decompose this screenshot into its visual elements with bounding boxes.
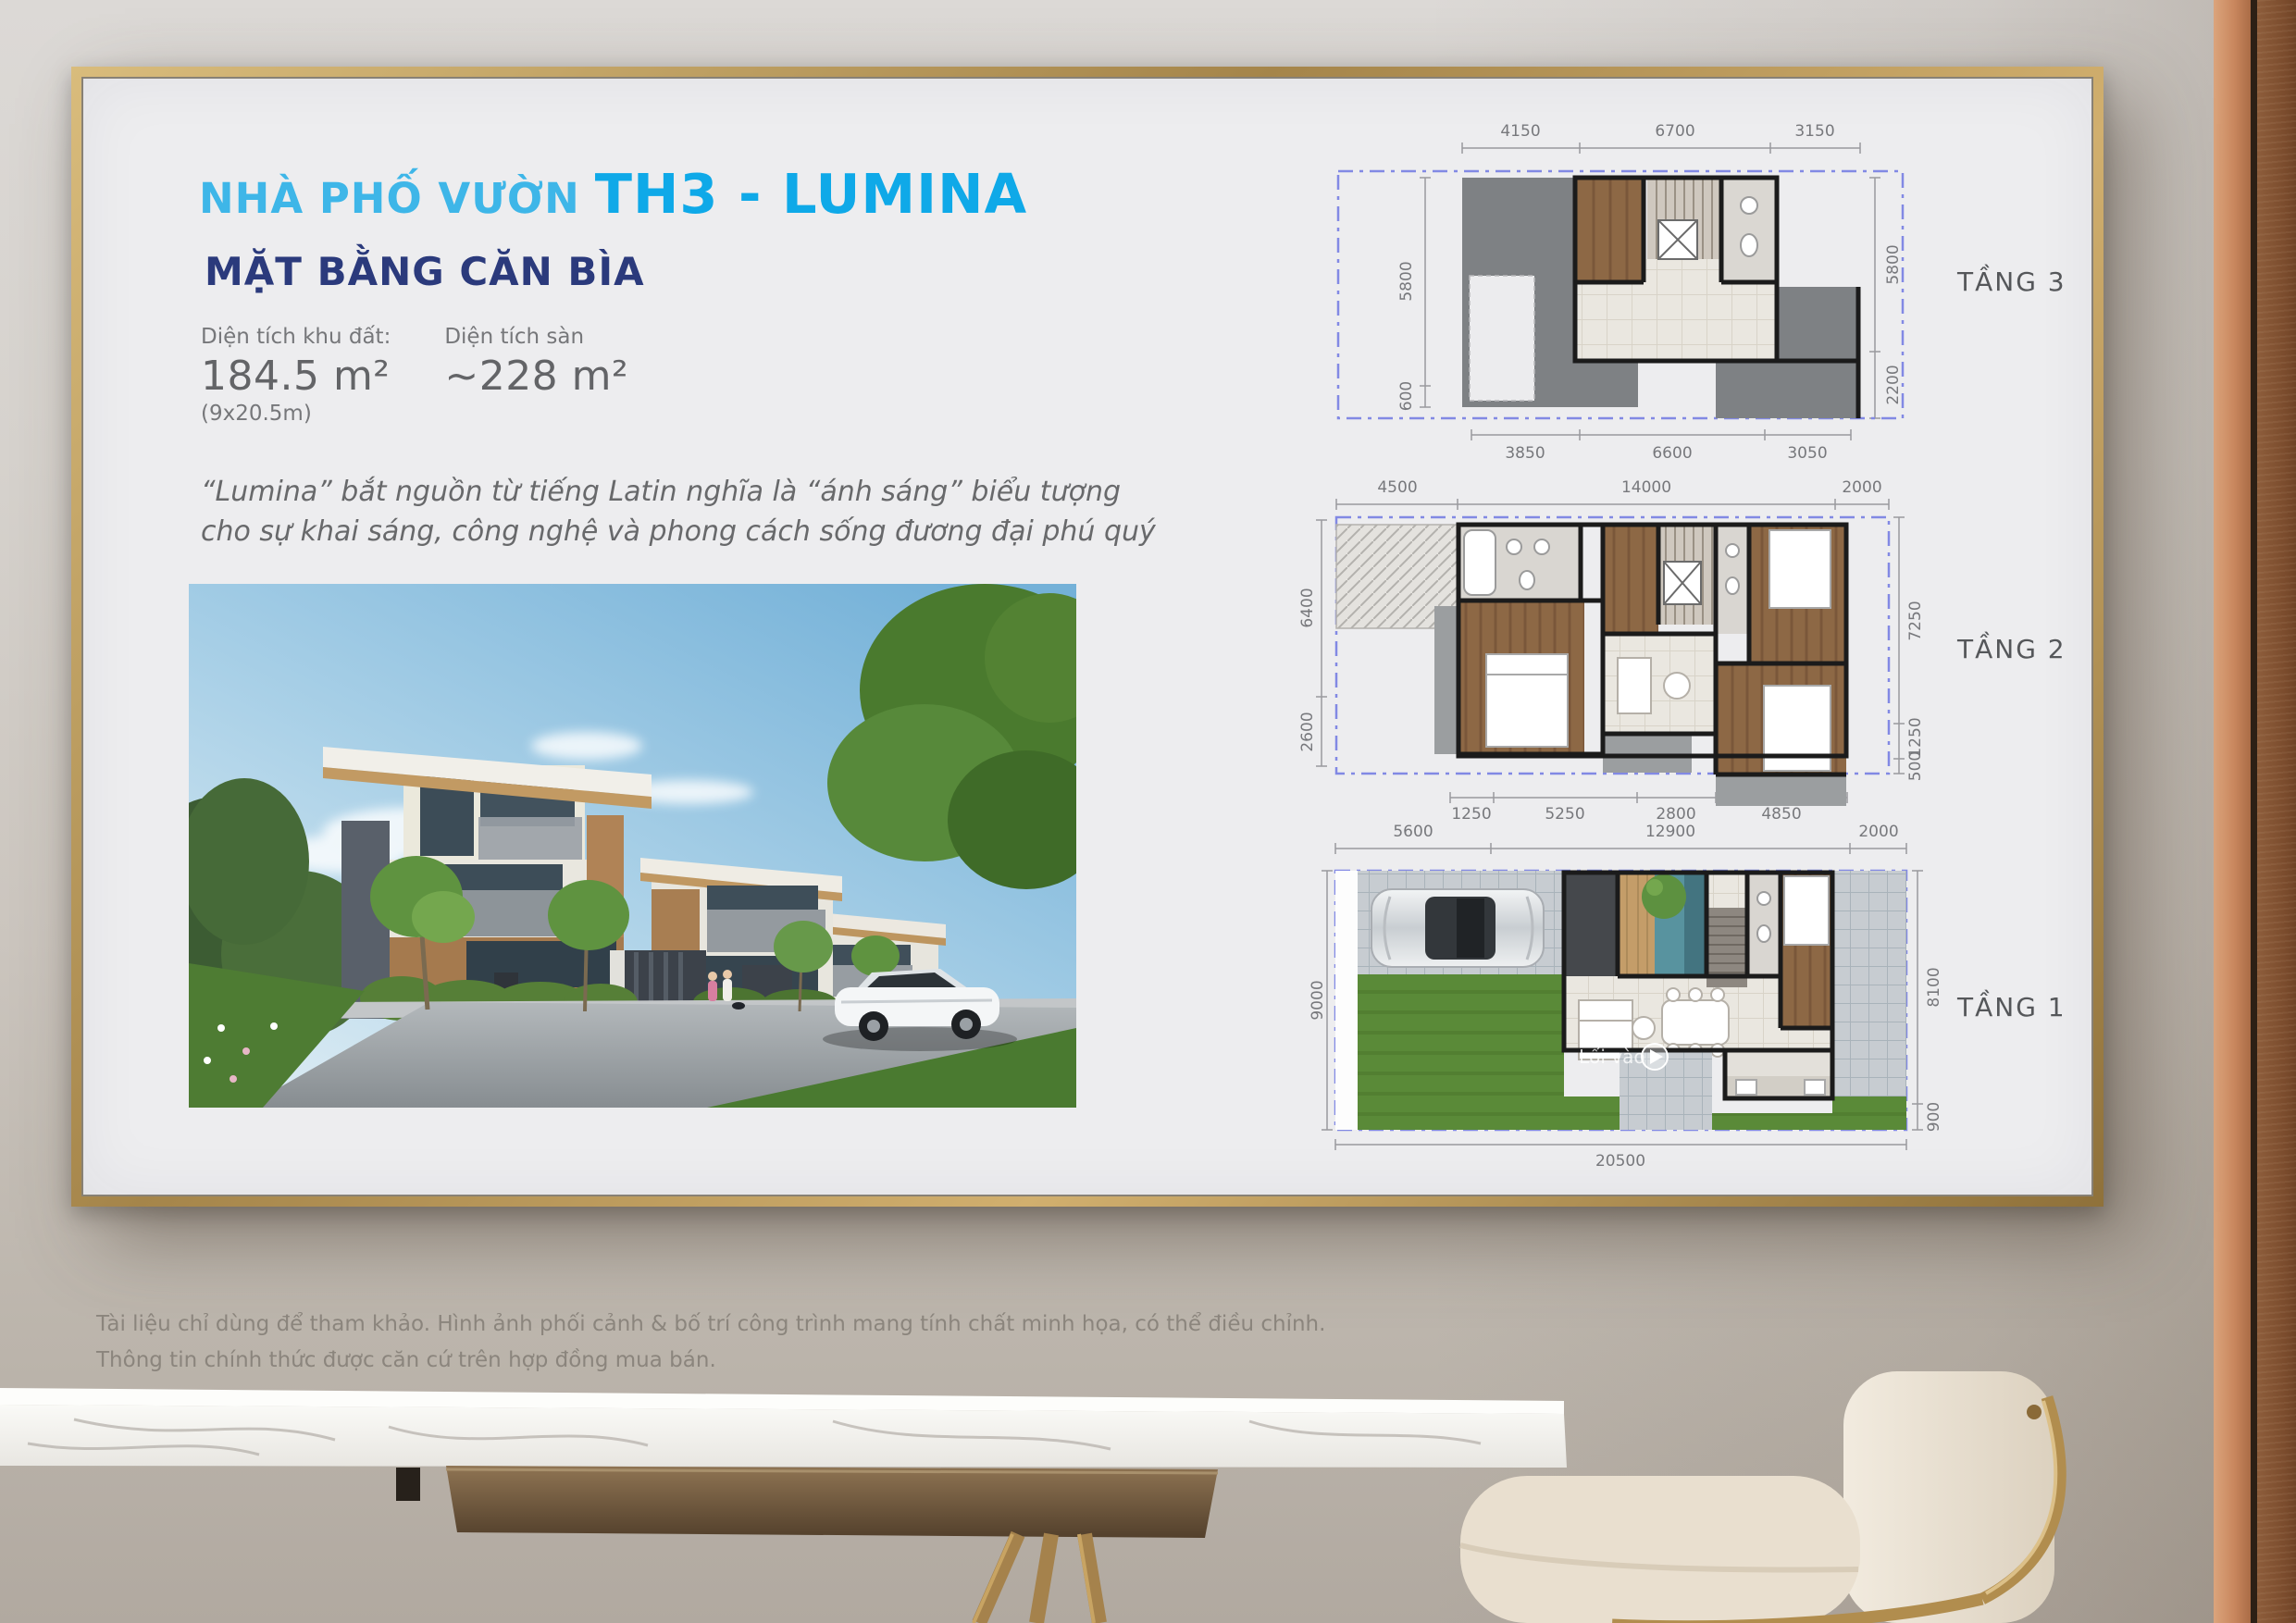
bathroom xyxy=(1747,873,1781,976)
kitchen xyxy=(1725,1050,1832,1098)
land-area-note: (9x20.5m) xyxy=(201,402,391,426)
dim-label: 5800 xyxy=(1397,261,1416,301)
family-room xyxy=(1603,634,1716,734)
foreground-furniture xyxy=(0,1323,2296,1623)
land-area-label: Diện tích khu đất: xyxy=(201,325,391,349)
dim-label: 6700 xyxy=(1655,122,1694,141)
floor-area-stat: Diện tích sàn ~228 m² xyxy=(444,325,628,426)
dim-label: 2200 xyxy=(1884,365,1903,404)
bedroom-master xyxy=(1458,601,1584,754)
dim-label: 20500 xyxy=(1595,1152,1645,1171)
dim-label: 6600 xyxy=(1652,444,1692,463)
bedroom-2 xyxy=(1749,525,1846,663)
dim-label: 14000 xyxy=(1621,478,1671,497)
dim-label: 12900 xyxy=(1645,823,1695,841)
balcony-right xyxy=(1716,774,1846,806)
poster-subtitle: MẶT BẰNG CĂN BÌA xyxy=(205,249,645,294)
render-photo xyxy=(189,584,1076,1108)
title-prefix: NHÀ PHỐ VƯỜN xyxy=(199,174,580,223)
floor-plan-level-2: 4500 14000 2000 1250 5250 2800 4850 6400… xyxy=(1296,477,1943,824)
dim-label: 5600 xyxy=(1393,823,1433,841)
lawn-patch-4 xyxy=(1832,1096,1906,1130)
side-strip xyxy=(1335,871,1358,1130)
level-2-label: TẦNG 2 xyxy=(1957,634,2066,664)
bedroom xyxy=(1781,871,1832,1028)
roof-terrace-bottom xyxy=(1716,361,1858,418)
dim-label: 2000 xyxy=(1858,823,1898,841)
dim-label: 8100 xyxy=(1925,967,1943,1007)
dim-label: 3050 xyxy=(1787,444,1827,463)
lawn-patch-2 xyxy=(1564,1096,1620,1130)
bathroom-suite xyxy=(1458,525,1581,601)
dim-label: 4500 xyxy=(1377,478,1417,497)
area-stats: Diện tích khu đất: 184.5 m² (9x20.5m) Di… xyxy=(201,325,628,426)
land-area-value: 184.5 m² xyxy=(201,353,391,400)
bathroom xyxy=(1723,178,1777,282)
dim-label: 3150 xyxy=(1794,122,1834,141)
floor-plan-level-1: Lối vào 5600 12900 2000 20500 9000 8100 … xyxy=(1314,819,1953,1184)
floor-plan-level-3: 4150 6700 3150 3850 6600 3050 5800 600 5… xyxy=(1333,120,1943,472)
wood-room xyxy=(1577,178,1644,282)
quote-line-1: “Lumina” bắt nguồn từ tiếng Latin nghĩa … xyxy=(201,473,1156,513)
entry-marble xyxy=(1564,873,1618,976)
entrance-watermark: Lối vào xyxy=(1579,1044,1668,1070)
dim-label: 9000 xyxy=(1309,980,1327,1020)
marble-table xyxy=(0,1388,1567,1623)
dim-label: 6400 xyxy=(1298,588,1317,627)
balcony-left xyxy=(1434,606,1458,754)
lawn-patch-3 xyxy=(1712,1113,1832,1130)
dim-label: 5800 xyxy=(1884,244,1903,284)
deck-and-pond xyxy=(1618,873,1706,976)
title-main: TH3 - LUMINA xyxy=(595,162,1027,226)
stairs xyxy=(1658,525,1716,625)
play-icon xyxy=(1642,1044,1668,1070)
quote-text: “Lumina” bắt nguồn từ tiếng Latin nghĩa … xyxy=(201,473,1156,552)
quote-line-2: cho sự khai sáng, công nghệ và phong các… xyxy=(201,513,1156,552)
stairs xyxy=(1647,178,1719,259)
dim-label: 4150 xyxy=(1500,122,1540,141)
dim-label: 7250 xyxy=(1906,601,1925,640)
scene: NHÀ PHỐ VƯỜN TH3 - LUMINA MẶT BẰNG CĂN B… xyxy=(0,0,2296,1623)
poster-title: NHÀ PHỐ VƯỜN TH3 - LUMINA xyxy=(199,162,1027,226)
dim-label: 500 xyxy=(1906,751,1925,781)
balcony-center xyxy=(1603,734,1692,773)
dining-set xyxy=(1662,988,1729,1057)
hall-wood xyxy=(1603,525,1658,634)
dim-label: 2000 xyxy=(1842,478,1881,497)
patio-tiles xyxy=(1832,871,1906,1096)
gold-picture-frame: NHÀ PHỐ VƯỜN TH3 - LUMINA MẶT BẰNG CĂN B… xyxy=(71,67,2104,1207)
dim-label: 3850 xyxy=(1505,444,1545,463)
dim-label: 600 xyxy=(1397,381,1416,411)
bathroom-2 xyxy=(1716,525,1749,634)
dim-label: 2600 xyxy=(1298,712,1317,751)
roof-terrace-right xyxy=(1768,287,1858,361)
dim-label: 900 xyxy=(1925,1102,1943,1132)
floor-area-value: ~228 m² xyxy=(444,353,628,400)
land-area-stat: Diện tích khu đất: 184.5 m² (9x20.5m) xyxy=(201,325,391,426)
poster-board: NHÀ PHỐ VƯỜN TH3 - LUMINA MẶT BẰNG CĂN B… xyxy=(81,77,2093,1196)
car-icon xyxy=(1371,889,1544,967)
garden-lawn xyxy=(1358,974,1564,1130)
floor-area-label: Diện tích sàn xyxy=(444,325,628,349)
entrance-label: Lối vào xyxy=(1579,1046,1645,1068)
level-3-label: TẦNG 3 xyxy=(1957,266,2066,297)
level-1-label: TẦNG 1 xyxy=(1957,992,2066,1022)
